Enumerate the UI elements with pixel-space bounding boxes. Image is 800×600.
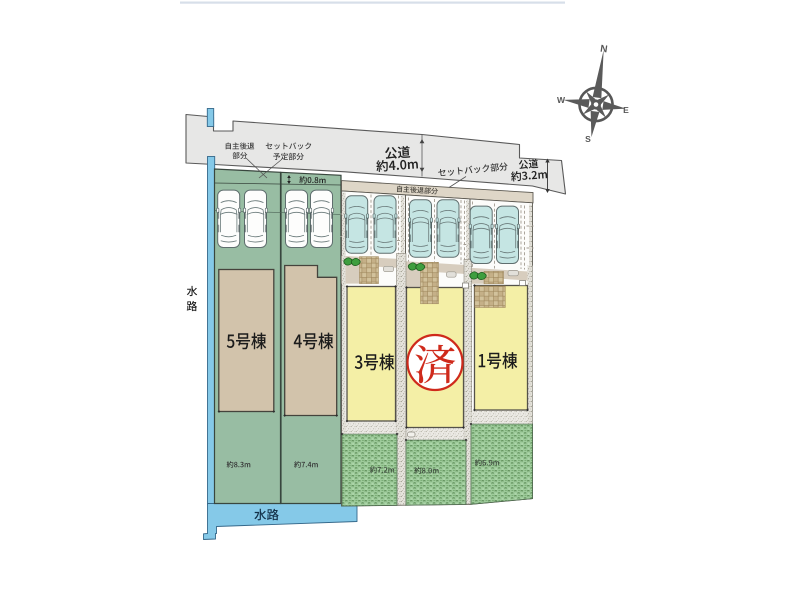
svg-text:E: E: [623, 105, 629, 115]
svg-text:S: S: [585, 134, 591, 144]
svg-text:N: N: [599, 44, 608, 56]
svg-text:W: W: [557, 95, 566, 105]
